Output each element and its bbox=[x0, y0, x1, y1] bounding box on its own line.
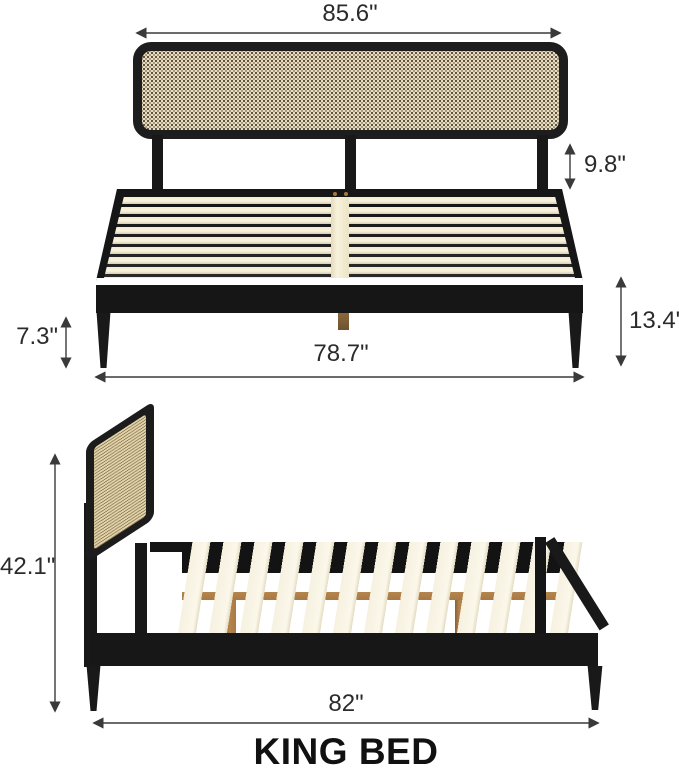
front-bed-base bbox=[96, 189, 583, 313]
side-slats bbox=[178, 542, 584, 633]
king-bed-dimension-diagram: 85.6" 9.8" 7.3" 13.4" 78.7" 42.1" 82" KI… bbox=[0, 0, 679, 771]
front-headboard-post-left bbox=[152, 135, 163, 196]
front-leg-left bbox=[96, 313, 111, 368]
side-platform bbox=[182, 542, 568, 633]
page-title: KING BED bbox=[186, 733, 506, 771]
front-center-support-beam bbox=[331, 197, 349, 278]
front-leg-right bbox=[568, 313, 583, 368]
front-center-foot bbox=[338, 313, 349, 330]
front-slats bbox=[104, 197, 575, 278]
dim-label-frame-width: 78.7" bbox=[291, 340, 391, 368]
front-headboard-rattan-panel bbox=[142, 51, 559, 130]
dim-label-frame-length: 82" bbox=[296, 690, 396, 718]
dim-label-headboard-clearance: 9.8" bbox=[584, 151, 626, 179]
dim-label-headboard-width: 85.6" bbox=[300, 0, 400, 28]
dim-label-platform-height: 13.4" bbox=[629, 307, 679, 335]
front-headboard-frame bbox=[133, 42, 568, 139]
front-headboard-post-right bbox=[537, 135, 548, 196]
side-headboard-post-rear bbox=[135, 543, 147, 633]
side-footboard-post bbox=[535, 537, 546, 633]
front-bolt-left bbox=[333, 192, 337, 196]
front-headboard-post-center bbox=[345, 135, 356, 196]
front-underbed-gap bbox=[96, 278, 583, 285]
dim-label-leg-height: 7.3" bbox=[8, 323, 58, 351]
side-front-rail bbox=[90, 633, 598, 666]
dim-label-overall-height: 42.1" bbox=[0, 553, 48, 581]
front-bolt-right bbox=[344, 192, 348, 196]
